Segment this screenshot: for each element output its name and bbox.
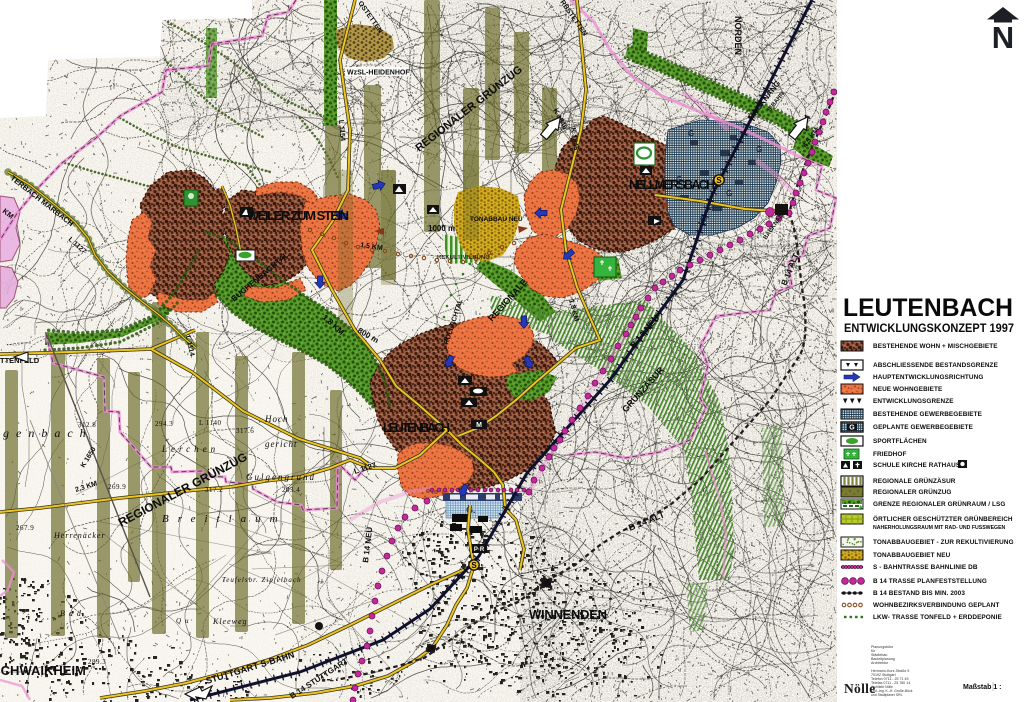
svg-text:B 14 TRASSE PLANFESTSTELLUNG: B 14 TRASSE PLANFESTSTELLUNG [873, 578, 987, 585]
svg-text:SPORTFLÄCHEN: SPORTFLÄCHEN [873, 437, 927, 445]
svg-text:NÖRDEN: NÖRDEN [733, 16, 743, 55]
svg-text:317.6: 317.6 [236, 427, 254, 435]
svg-text:GEPLANTE GEWERBEGEBIETE: GEPLANTE GEWERBEGEBIETE [873, 424, 974, 431]
svg-text:SCHULE KIRCHE RATHAUS: SCHULE KIRCHE RATHAUS [873, 462, 961, 469]
svg-text:G: G [726, 189, 732, 198]
svg-text:Herrenäcker: Herrenäcker [53, 531, 106, 540]
svg-text:SCHWAIKHEIM: SCHWAIKHEIM [0, 663, 86, 678]
svg-text:BESTEHENDE GEWERBEGEBIETE: BESTEHENDE GEWERBEGEBIETE [873, 411, 983, 418]
svg-text:HAUPTENTWICKLUNGSRICHTUNG: HAUPTENTWICKLUNGSRICHTUNG [873, 374, 983, 381]
svg-text:REKULTIVIERUNG: REKULTIVIERUNG [437, 255, 490, 261]
svg-text:LEUTENBACH: LEUTENBACH [843, 294, 1013, 322]
svg-text:WzSL-HEIDENHOF: WzSL-HEIDENHOF [347, 70, 410, 77]
svg-text:BESTEHENDE WOHN + MISCHGEBIETE: BESTEHENDE WOHN + MISCHGEBIETE [873, 343, 998, 350]
svg-text:ENTWICKLUNGSGRENZE: ENTWICKLUNGSGRENZE [873, 398, 954, 405]
svg-text:Bad: Bad [60, 609, 85, 618]
svg-text:gericht: gericht [265, 439, 298, 449]
svg-text:M: M [476, 422, 482, 429]
svg-text:LKW- TRASSE TONFELD + ERDDEPON: LKW- TRASSE TONFELD + ERDDEPONIE [873, 614, 1002, 621]
svg-text:G: G [688, 129, 694, 138]
svg-text:B 14 BESTAND BIS MIN. 2003: B 14 BESTAND BIS MIN. 2003 [873, 590, 965, 597]
svg-text:und Stadtplaner SRL: und Stadtplaner SRL [871, 693, 903, 697]
svg-text:269.9: 269.9 [108, 483, 126, 491]
svg-text:NELLMERSBACH: NELLMERSBACH [629, 178, 715, 192]
svg-text:Kleeweg: Kleeweg [212, 617, 248, 626]
svg-text:NAHERHOLUNGSRAUM MIT RAD- UND: NAHERHOLUNGSRAUM MIT RAD- UND FUSSWEGEN [873, 525, 1006, 531]
svg-text:G: G [756, 145, 762, 154]
svg-text:FRIEDHOF: FRIEDHOF [873, 451, 906, 458]
svg-text:Gulgengrund: Gulgengrund [246, 472, 316, 482]
svg-text:Architektur: Architektur [871, 661, 889, 665]
svg-text:Maßstab 1 :: Maßstab 1 : [963, 684, 1002, 691]
svg-text:WINNENDEN: WINNENDEN [529, 607, 607, 622]
svg-text:WEILER ZUM STEIN: WEILER ZUM STEIN [247, 208, 349, 223]
svg-text:REGIONALE GRÜNZÄSUR: REGIONALE GRÜNZÄSUR [873, 476, 956, 485]
svg-text:ABSCHLIESSENDE BESTANDSGRENZE: ABSCHLIESSENDE BESTANDSGRENZE [873, 362, 999, 369]
svg-text:G: G [849, 425, 855, 432]
svg-text:REGIONALER GRÜNZUG: REGIONALER GRÜNZUG [873, 487, 952, 496]
svg-text:Qu: Qu [176, 617, 193, 625]
svg-text:Breitlaum: Breitlaum [162, 513, 287, 525]
svg-text:TONABBAUGEBIET - ZUR REKULTIVI: TONABBAUGEBIET - ZUR REKULTIVIERUNG [873, 539, 1014, 546]
svg-text:203.4: 203.4 [282, 486, 300, 494]
svg-text:Lerchen: Lerchen [161, 444, 219, 454]
svg-text:1000 m: 1000 m [428, 224, 455, 233]
svg-text:NEUE WOHNGEBIETE: NEUE WOHNGEBIETE [873, 386, 943, 393]
svg-text:S - BAHNTRASSE BAHNLINIE DB: S - BAHNTRASSE BAHNLINIE DB [873, 564, 978, 571]
svg-text:WOHNBEZIRKSVERBINDUNG GEPLANT: WOHNBEZIRKSVERBINDUNG GEPLANT [873, 602, 999, 609]
svg-text:L 1140: L 1140 [199, 419, 222, 427]
svg-text:TONABBAUGEBIET NEU: TONABBAUGEBIET NEU [873, 552, 951, 559]
svg-text:294.3: 294.3 [155, 420, 173, 428]
svg-text:267.9: 267.9 [16, 524, 34, 532]
svg-text:S: S [471, 561, 477, 570]
svg-text:289.3: 289.3 [88, 658, 106, 666]
svg-text:Hoch: Hoch [264, 414, 289, 424]
svg-text:N: N [992, 20, 1014, 55]
svg-text:LEUTENBACH: LEUTENBACH [383, 421, 450, 435]
svg-text:GRENZE REGIONALER GRÜNRAUM / L: GRENZE REGIONALER GRÜNRAUM / LSG [873, 499, 1005, 508]
svg-text:TONABBAU NEU: TONABBAU NEU [470, 216, 523, 223]
svg-text:Teufelsbr. Zipfelbach: Teufelsbr. Zipfelbach [222, 576, 301, 584]
svg-text:ÖRTLICHER GESCHÜTZTER GRÜNBERE: ÖRTLICHER GESCHÜTZTER GRÜNBEREICH [873, 514, 1013, 523]
svg-text:317.2: 317.2 [205, 486, 223, 494]
svg-text:312.8: 312.8 [78, 421, 96, 429]
svg-text:ENTWICKLUNGSKONZEPT 1997: ENTWICKLUNGSKONZEPT 1997 [844, 323, 1014, 335]
svg-text:P·R: P·R [474, 547, 485, 553]
svg-text:S: S [716, 176, 722, 185]
